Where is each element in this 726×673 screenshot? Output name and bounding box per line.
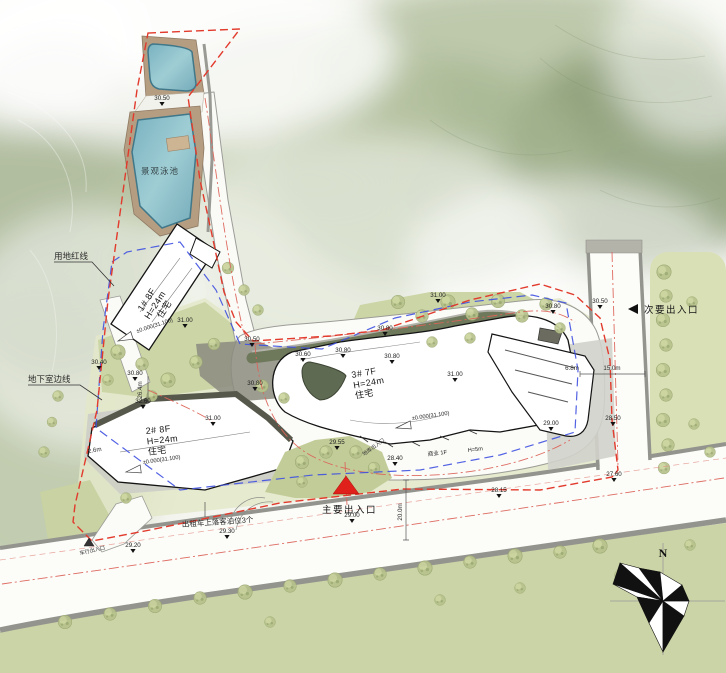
svg-text:28.40: 28.40 xyxy=(387,455,403,462)
dim-15-0m: 15.0m xyxy=(603,365,620,372)
tree-icon xyxy=(427,337,438,348)
tree-icon xyxy=(39,447,50,458)
tree-icon xyxy=(239,285,250,296)
tree-icon xyxy=(418,561,432,575)
pool-label: 景观泳池 xyxy=(141,166,179,176)
tree-icon xyxy=(435,595,446,606)
svg-text:28.50: 28.50 xyxy=(605,415,621,422)
tree-icon xyxy=(491,294,505,308)
svg-text:30.80: 30.80 xyxy=(384,353,400,360)
tree-icon xyxy=(238,585,252,599)
tree-icon xyxy=(136,358,149,371)
pool-platform xyxy=(166,136,190,152)
tree-icon xyxy=(660,339,673,352)
svg-text:31.00: 31.00 xyxy=(430,292,446,299)
tree-icon xyxy=(685,540,696,551)
svg-text:30.50: 30.50 xyxy=(154,95,170,102)
secondary-entrance-label: 次要出入口 xyxy=(644,304,699,316)
tree-icon xyxy=(555,323,566,334)
tree-icon xyxy=(253,305,264,316)
svg-text:30.80: 30.80 xyxy=(247,380,263,387)
svg-text:29.20: 29.20 xyxy=(125,542,141,549)
tree-icon xyxy=(190,356,203,369)
tree-icon xyxy=(279,393,290,404)
svg-text:29.00: 29.00 xyxy=(344,512,360,519)
dim-20-0m: 20.0m xyxy=(397,503,404,520)
tree-icon xyxy=(658,462,670,474)
dim-6-8m: 6.8m xyxy=(565,365,579,372)
tree-icon xyxy=(47,417,57,427)
tree-icon xyxy=(121,493,132,504)
tree-icon xyxy=(111,345,125,359)
north-label: N xyxy=(659,546,668,560)
dim-26-4m: 26.4m xyxy=(137,381,144,398)
tree-icon xyxy=(660,389,673,402)
svg-text:29.30: 29.30 xyxy=(219,528,235,535)
tree-icon xyxy=(657,265,671,279)
right-road-cap xyxy=(586,240,642,253)
svg-text:30.50: 30.50 xyxy=(592,298,608,305)
tree-icon xyxy=(464,556,477,569)
svg-text:30.80: 30.80 xyxy=(335,347,351,354)
tree-icon xyxy=(58,615,72,629)
tree-icon xyxy=(593,539,607,553)
tree-icon xyxy=(660,290,673,303)
tree-icon xyxy=(391,295,405,309)
svg-text:31.00: 31.00 xyxy=(447,371,463,378)
upper-pool xyxy=(148,44,196,91)
site-red-line-label: 用地红线 xyxy=(54,251,89,261)
tree-icon xyxy=(689,419,700,430)
tree-icon xyxy=(53,391,64,402)
tree-icon xyxy=(284,580,297,593)
tree-icon xyxy=(265,617,276,628)
tree-icon xyxy=(295,455,309,469)
tree-icon xyxy=(103,375,114,386)
svg-text:31.00: 31.00 xyxy=(205,415,221,422)
tree-icon xyxy=(508,549,522,563)
tree-icon xyxy=(465,333,476,344)
svg-text:30.80: 30.80 xyxy=(377,325,393,332)
svg-text:29.55: 29.55 xyxy=(329,439,345,446)
svg-text:30.40: 30.40 xyxy=(91,359,107,366)
tree-icon xyxy=(328,573,342,587)
svg-text:27.60: 27.60 xyxy=(606,471,622,478)
tree-icon xyxy=(662,439,675,452)
site-plan-stage: 景观泳池 用地红线 地下室边线 次要出入口 主要出入口 出租车上落客泊位3个 车… xyxy=(0,0,726,673)
basement-line-label: 地下室边线 xyxy=(28,374,71,384)
tree-icon xyxy=(554,546,567,559)
tree-icon xyxy=(161,373,175,387)
svg-text:31.00: 31.00 xyxy=(177,317,193,324)
tree-icon xyxy=(374,568,387,581)
tree-icon xyxy=(297,477,308,488)
svg-text:30.50: 30.50 xyxy=(244,336,260,343)
svg-text:30.80: 30.80 xyxy=(545,303,561,310)
building-2-use: 住宅 xyxy=(147,444,167,457)
tree-icon xyxy=(320,446,333,459)
tree-icon xyxy=(656,413,670,427)
site-plan-drawing: 景观泳池 用地红线 地下室边线 次要出入口 主要出入口 出租车上落客泊位3个 车… xyxy=(0,0,726,673)
svg-text:30.80: 30.80 xyxy=(127,370,143,377)
tree-icon xyxy=(148,599,162,613)
svg-text:28.15: 28.15 xyxy=(491,487,507,494)
tree-icon xyxy=(656,363,670,377)
tree-icon xyxy=(350,446,363,459)
tree-icon xyxy=(515,583,526,594)
svg-text:29.00: 29.00 xyxy=(543,420,559,427)
tree-icon xyxy=(194,592,207,605)
tree-icon xyxy=(705,447,716,458)
tree-icon xyxy=(208,338,220,350)
tree-icon xyxy=(104,608,117,621)
svg-text:30.60: 30.60 xyxy=(295,351,311,358)
tree-icon xyxy=(222,262,234,274)
